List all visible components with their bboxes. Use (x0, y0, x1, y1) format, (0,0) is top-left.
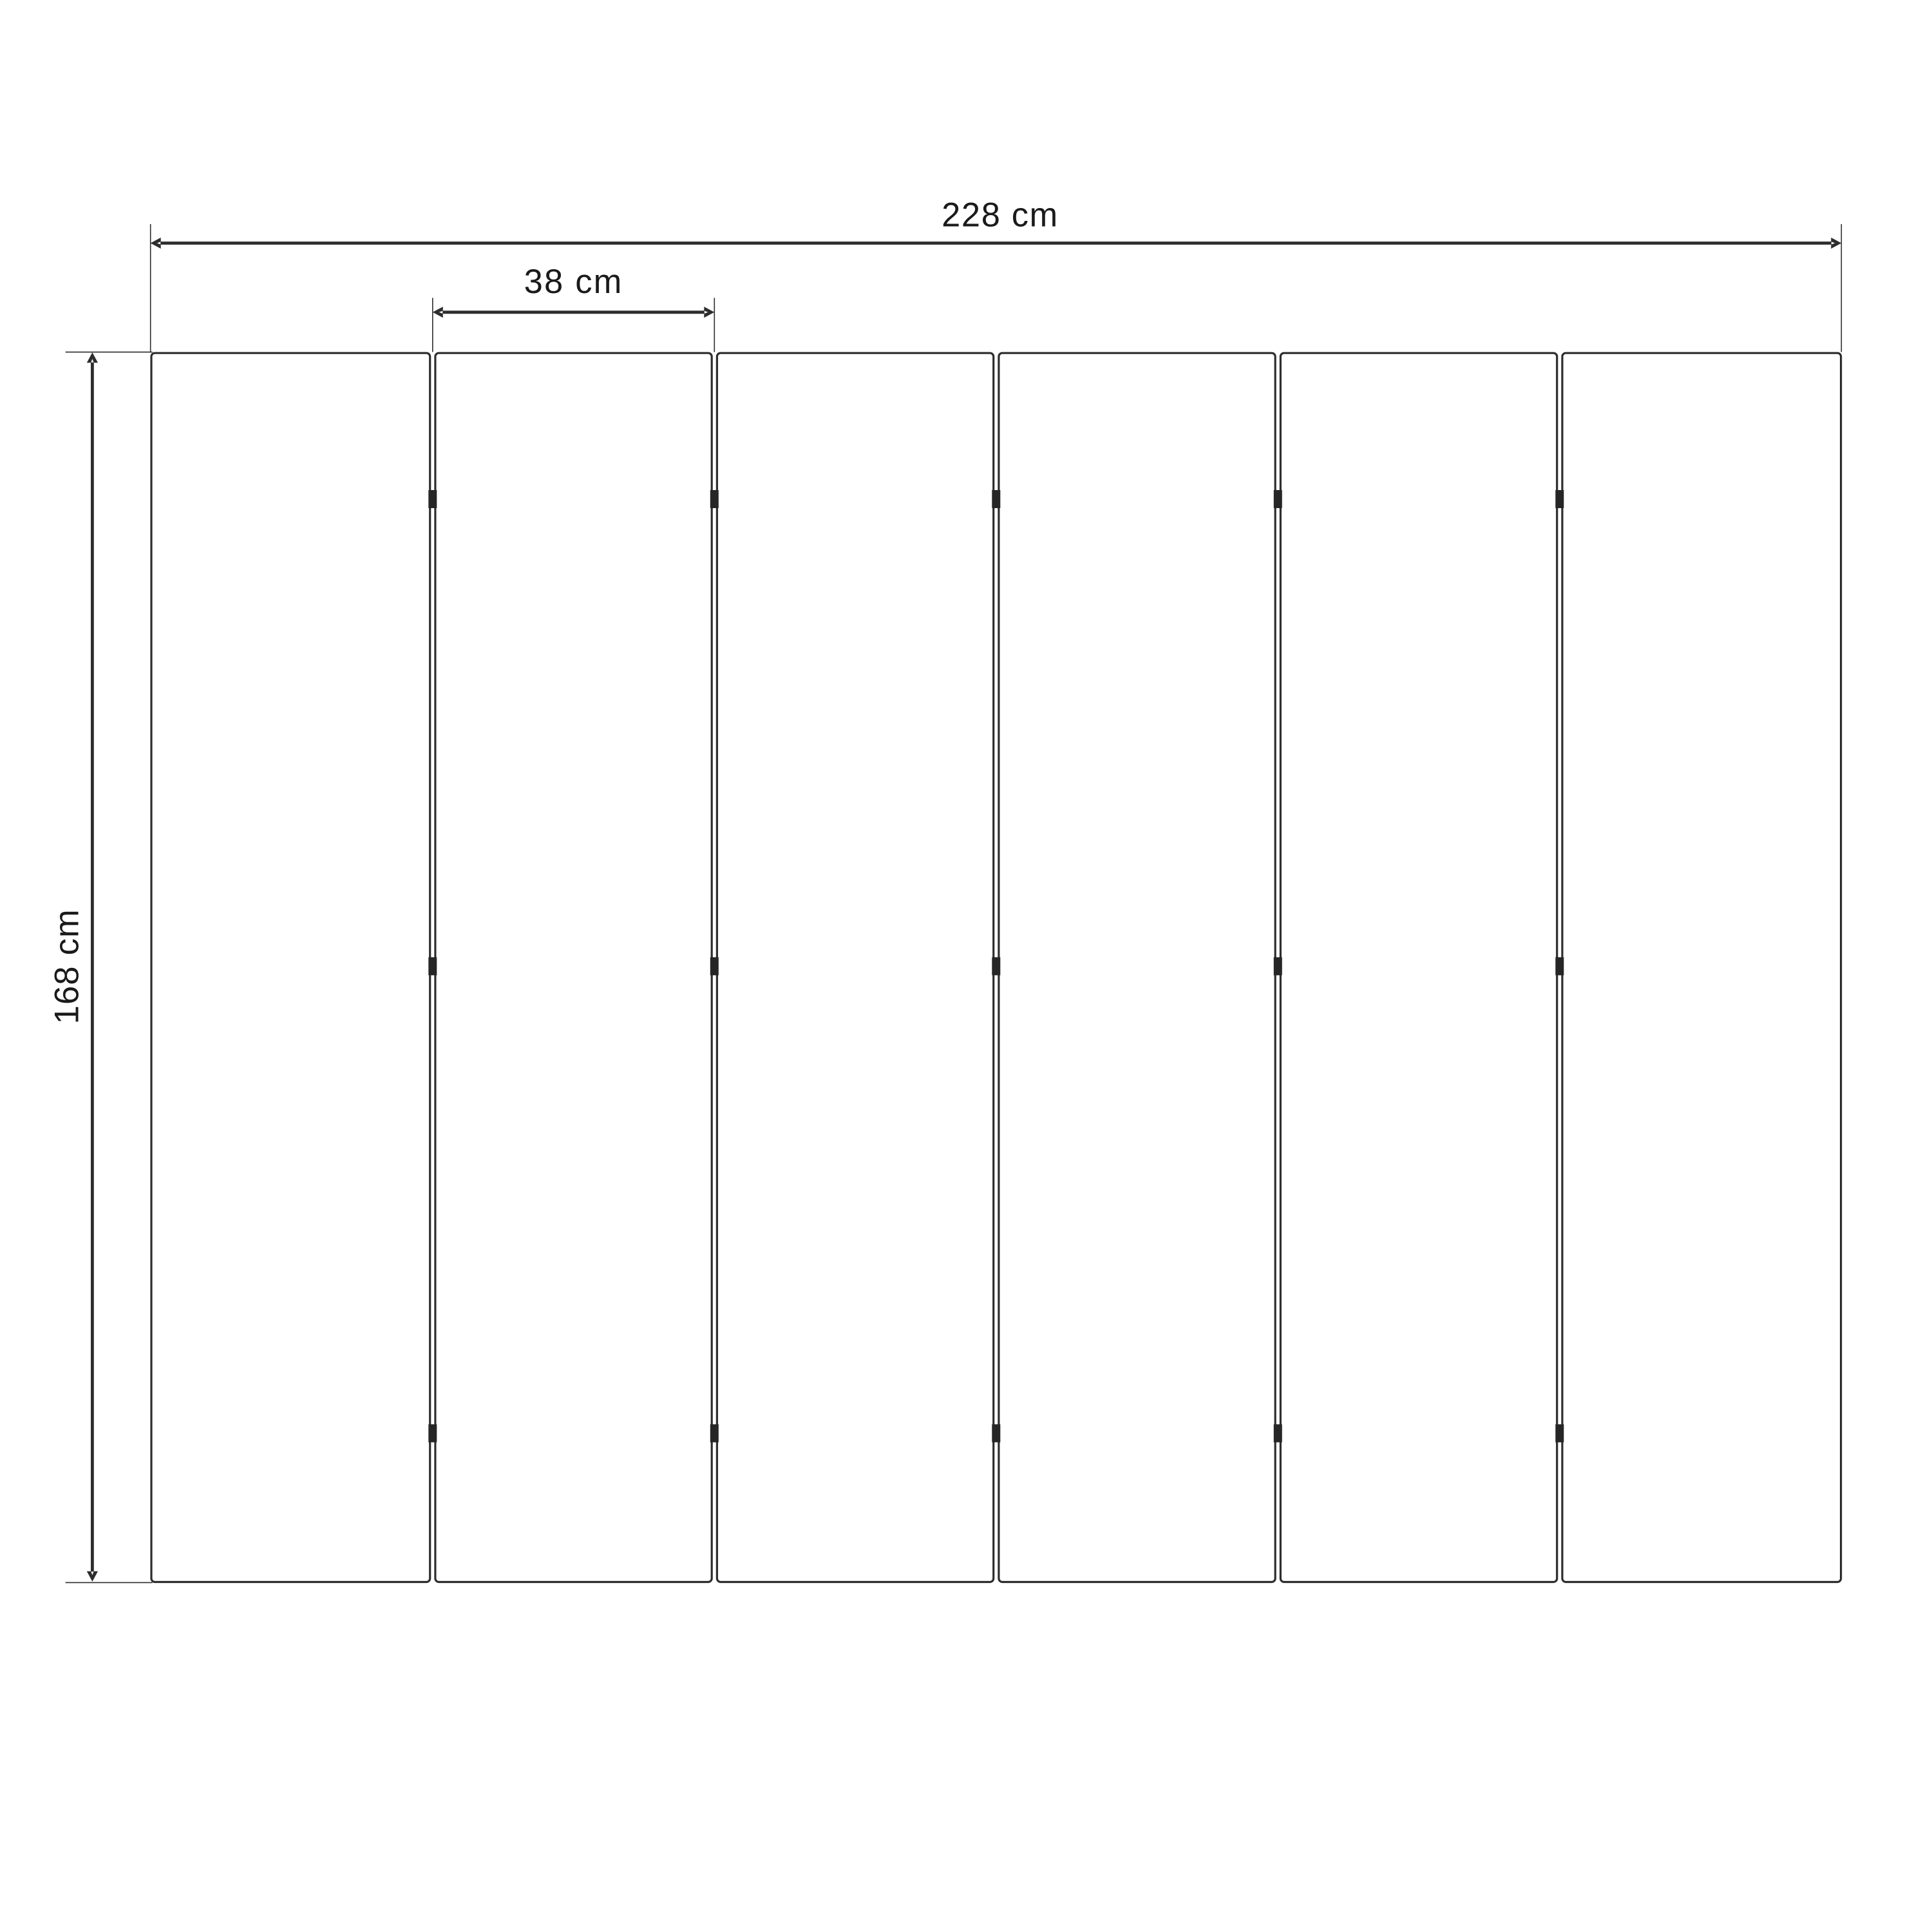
svg-text:228 cm: 228 cm (942, 196, 1059, 234)
svg-text:38 cm: 38 cm (524, 263, 623, 301)
svg-text:168 cm: 168 cm (48, 909, 86, 1024)
